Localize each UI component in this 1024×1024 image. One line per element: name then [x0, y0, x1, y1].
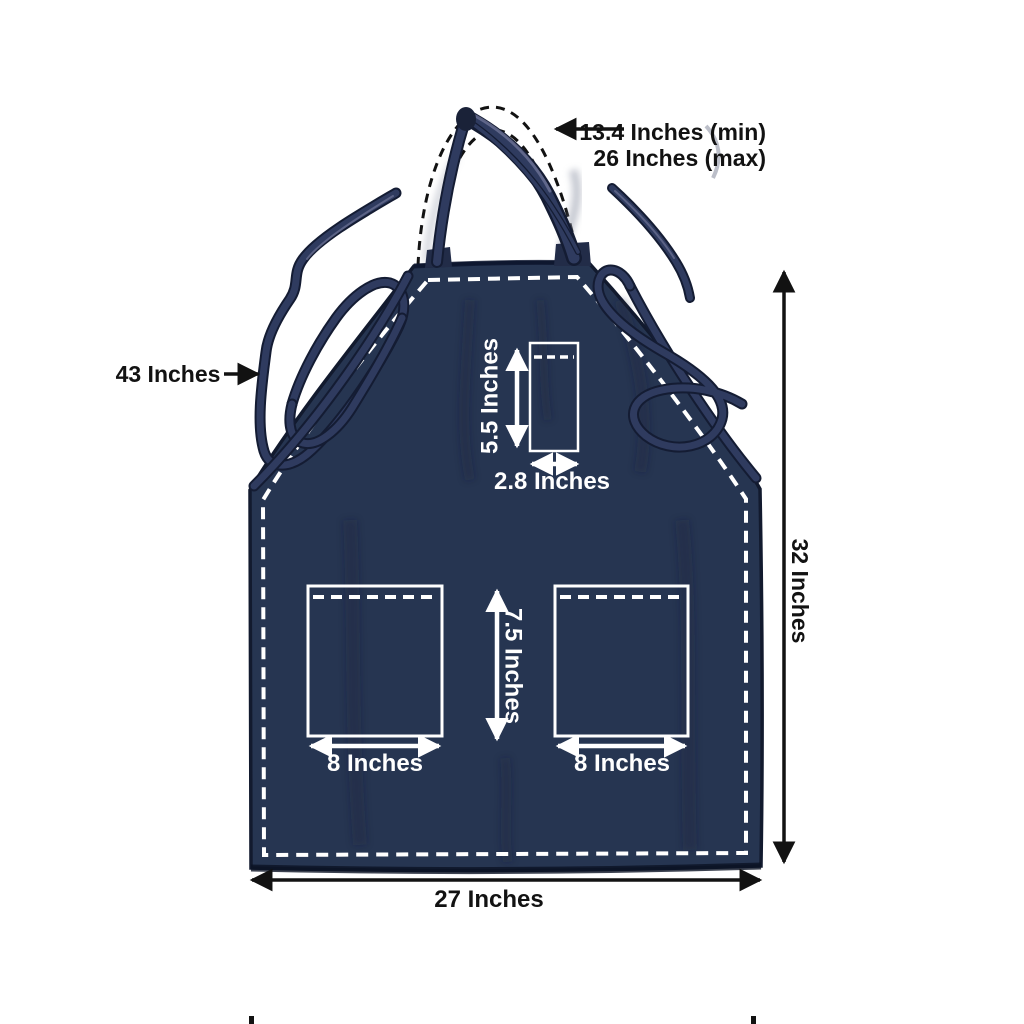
apron-height-label: 32 Inches: [787, 539, 813, 644]
lower-pocket-height-label: 7.5 Inches: [500, 608, 527, 724]
tie-length-label: 43 Inches: [116, 361, 221, 387]
apron-dimension-diagram: 5.5 Inches 2.8 Inches 8 Inches 7.5 Inche…: [0, 0, 1024, 1024]
lower-pocket-right-width-label: 8 Inches: [574, 750, 670, 777]
lower-pocket-left-width-label: 8 Inches: [327, 750, 423, 777]
diagram-canvas: 5.5 Inches 2.8 Inches 8 Inches 7.5 Inche…: [0, 0, 1024, 1024]
lower-pocket-height-dim: 7.5 Inches: [497, 591, 527, 739]
apron-height-dim: 32 Inches: [784, 272, 813, 862]
chest-pocket-width-label: 2.8 Inches: [494, 468, 610, 495]
apron-width-dim: 27 Inches: [252, 880, 760, 913]
neck-strap-dim: 13.4 Inches (min) 26 Inches (max): [556, 119, 766, 171]
chest-pocket-height-label: 5.5 Inches: [476, 338, 503, 454]
neck-min-label: 13.4 Inches (min): [579, 119, 766, 145]
strap-knot: [456, 107, 476, 131]
tie-length-dim: 43 Inches: [116, 361, 258, 387]
apron-width-label: 27 Inches: [434, 886, 543, 913]
neck-max-label: 26 Inches (max): [593, 145, 766, 171]
cropped-bottom-ticks: [249, 1016, 756, 1024]
